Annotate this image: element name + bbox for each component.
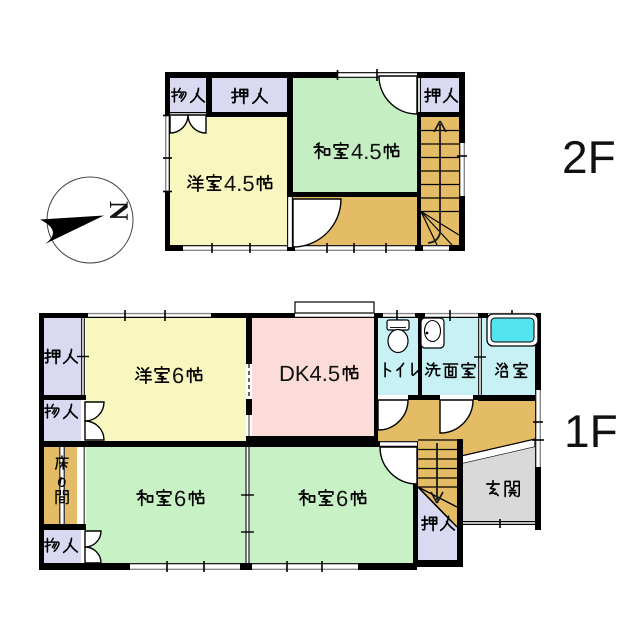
svg-text:6: 6: [336, 486, 348, 511]
svg-text:2F: 2F: [562, 131, 616, 183]
svg-text:4.5: 4.5: [224, 171, 255, 196]
svg-text:1F: 1F: [564, 405, 618, 457]
svg-text:DK4.5: DK4.5: [279, 361, 340, 386]
svg-text:6: 6: [172, 363, 184, 388]
svg-text:6: 6: [174, 486, 186, 511]
svg-text:4.5: 4.5: [351, 139, 382, 164]
svg-text:N: N: [104, 201, 134, 221]
